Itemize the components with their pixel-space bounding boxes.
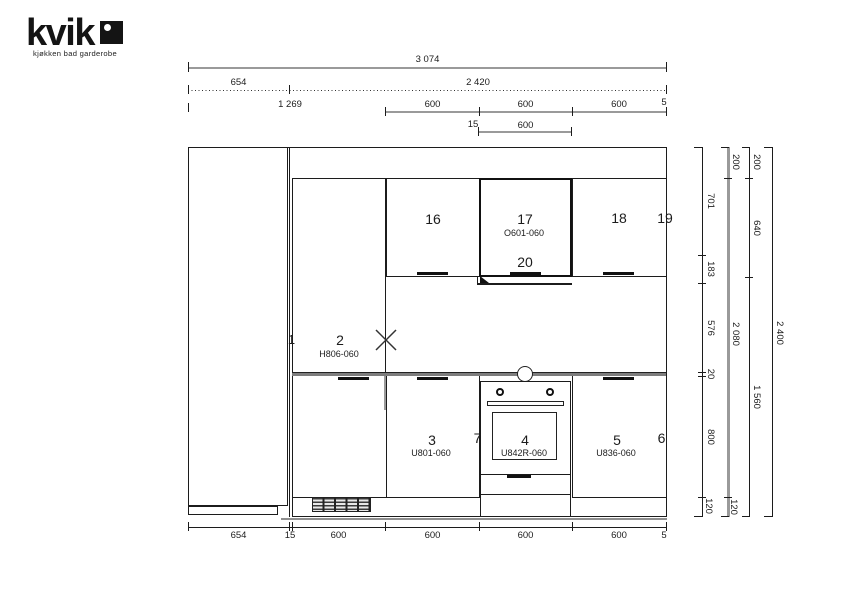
dim-600: 600 — [386, 531, 479, 541]
oven-column-right-edge — [570, 475, 571, 517]
dim-576: 576 — [705, 320, 715, 336]
dim-200: 200 — [730, 154, 740, 170]
hood-left-edge — [477, 276, 478, 284]
cabinet-18-number: 18 — [604, 211, 634, 225]
dim-tick — [385, 107, 386, 116]
dim-tick — [694, 516, 703, 517]
dim-tick — [742, 147, 750, 148]
dim-tick — [479, 107, 480, 116]
dim-600-hood: 600 — [479, 121, 572, 131]
hood-20-number: 20 — [510, 255, 540, 269]
dim-tick — [698, 255, 706, 256]
dim-tick — [764, 516, 773, 517]
dim-tick — [721, 516, 729, 517]
dim-tick — [479, 522, 480, 531]
cabinet-16-number: 16 — [418, 212, 448, 226]
cabinet-16-left-edge — [386, 178, 387, 276]
oven-knob-icon — [546, 388, 554, 396]
filler-6-label: 6 — [654, 431, 669, 445]
left-block-plinth — [188, 506, 278, 515]
oven-drawer-bottom-line — [480, 494, 571, 495]
oven-4-code: U842R-060 — [493, 449, 555, 458]
cabinet-5-number: 5 — [602, 433, 632, 447]
dim-tick — [188, 85, 189, 94]
cabinet-17-handle — [510, 272, 541, 275]
dim-line-vertical — [749, 147, 750, 517]
dim-183: 183 — [705, 261, 715, 277]
hood-corner-mark-icon — [480, 276, 489, 283]
dim-tick — [745, 277, 753, 278]
cabinet-5-handle — [603, 377, 634, 380]
tall-cabinet-number: 2 — [325, 333, 355, 347]
dim-640: 640 — [751, 220, 761, 236]
dim-tick — [478, 127, 479, 136]
dim-tick — [289, 85, 290, 94]
filler-7-label: 7 — [470, 431, 485, 445]
brand-logo: kvik — [26, 14, 94, 52]
dim-tick — [571, 127, 572, 136]
x-position-mark-icon — [374, 328, 398, 352]
tall-cabinet-handle — [338, 377, 369, 380]
dim-200: 200 — [751, 154, 761, 170]
dim-1269: 1 269 — [240, 100, 340, 110]
dim-600: 600 — [479, 531, 572, 541]
dim-120: 120 — [703, 498, 713, 514]
dim-2080: 2 080 — [730, 322, 740, 346]
cabinet-3-left-edge — [386, 376, 387, 498]
base-bottom-line-right — [572, 497, 666, 498]
brand-tagline: kjøkken bad garderobe — [33, 49, 117, 58]
dim-120: 120 — [728, 499, 738, 515]
oven-column-left-edge — [480, 475, 481, 517]
dim-5-bottom: 5 — [656, 531, 672, 541]
oven-knob-icon — [496, 388, 504, 396]
dim-600: 600 — [479, 100, 572, 110]
dim-tick — [742, 516, 750, 517]
kitchen-elevation-drawing: kvik kjøkken bad garderobe 3 074 654 2 4… — [0, 0, 842, 597]
filler-1-label: 1 — [284, 333, 299, 346]
dim-800: 800 — [705, 429, 715, 445]
dim-tick — [666, 85, 667, 94]
floor-shadow-line — [281, 518, 667, 521]
dim-tick — [385, 522, 386, 531]
dim-5: 5 — [656, 98, 672, 108]
logo-mark-icon — [100, 21, 123, 44]
dim-tick — [188, 103, 189, 112]
cabinet-3-handle — [417, 377, 448, 380]
dim-701: 701 — [705, 193, 715, 209]
dim-tick — [764, 147, 773, 148]
filler-1-line — [292, 178, 293, 517]
dim-tick — [188, 62, 189, 72]
dim-654-bottom: 654 — [188, 531, 289, 541]
dim-tick — [666, 107, 667, 116]
dim-1560: 1 560 — [751, 385, 761, 409]
cabinet-5-left-edge — [572, 376, 573, 498]
plinth-vent-grille-icon — [312, 497, 371, 512]
hood-bottom-line — [477, 283, 572, 285]
dim-tick — [721, 147, 729, 148]
dim-tick — [698, 283, 706, 284]
dim-tick — [745, 178, 753, 179]
dim-line — [385, 111, 667, 113]
dim-line — [478, 131, 572, 133]
left-side-block — [188, 147, 288, 506]
dim-tick — [724, 178, 732, 179]
cabinet-16-handle — [417, 272, 448, 275]
cabinet-3-code: U801-060 — [401, 449, 461, 458]
oven-drawer-handle — [507, 475, 531, 478]
wall-right-edge — [666, 147, 667, 517]
dim-tick — [572, 107, 573, 116]
dim-tick — [724, 497, 732, 498]
dim-tick — [694, 147, 703, 148]
cabinet-5-code: U836-060 — [586, 449, 646, 458]
filler-19-label: 19 — [650, 211, 680, 225]
dim-2400: 2 400 — [774, 321, 784, 345]
dim-600: 600 — [292, 531, 385, 541]
dim-654-top: 654 — [188, 78, 289, 88]
dim-total-width: 3 074 — [188, 55, 667, 65]
dim-600: 600 — [572, 531, 666, 541]
dim-line-vertical — [702, 147, 703, 517]
dim-line — [188, 527, 667, 528]
cabinet-18-left-edge — [572, 178, 573, 276]
cabinet-17-code: O601-060 — [494, 229, 554, 238]
dim-600: 600 — [386, 100, 479, 110]
tall-cabinet-code: H806-060 — [309, 350, 369, 359]
dim-line — [188, 67, 667, 69]
dim-600: 600 — [572, 100, 666, 110]
dim-tick — [666, 62, 667, 72]
oven-4-number: 4 — [510, 433, 540, 447]
dim-2420: 2 420 — [289, 78, 667, 88]
dim-20: 20 — [705, 369, 715, 380]
cabinet-18-handle — [603, 272, 634, 275]
hob-circle-icon — [517, 366, 533, 382]
oven-handle-bar — [487, 401, 564, 406]
dim-tick — [572, 522, 573, 531]
logo-dot-icon — [104, 24, 111, 31]
dim-tick — [188, 522, 189, 531]
cabinet-3-number: 3 — [417, 433, 447, 447]
cabinet-17-number: 17 — [510, 212, 540, 226]
dim-line-dotted — [188, 90, 667, 91]
